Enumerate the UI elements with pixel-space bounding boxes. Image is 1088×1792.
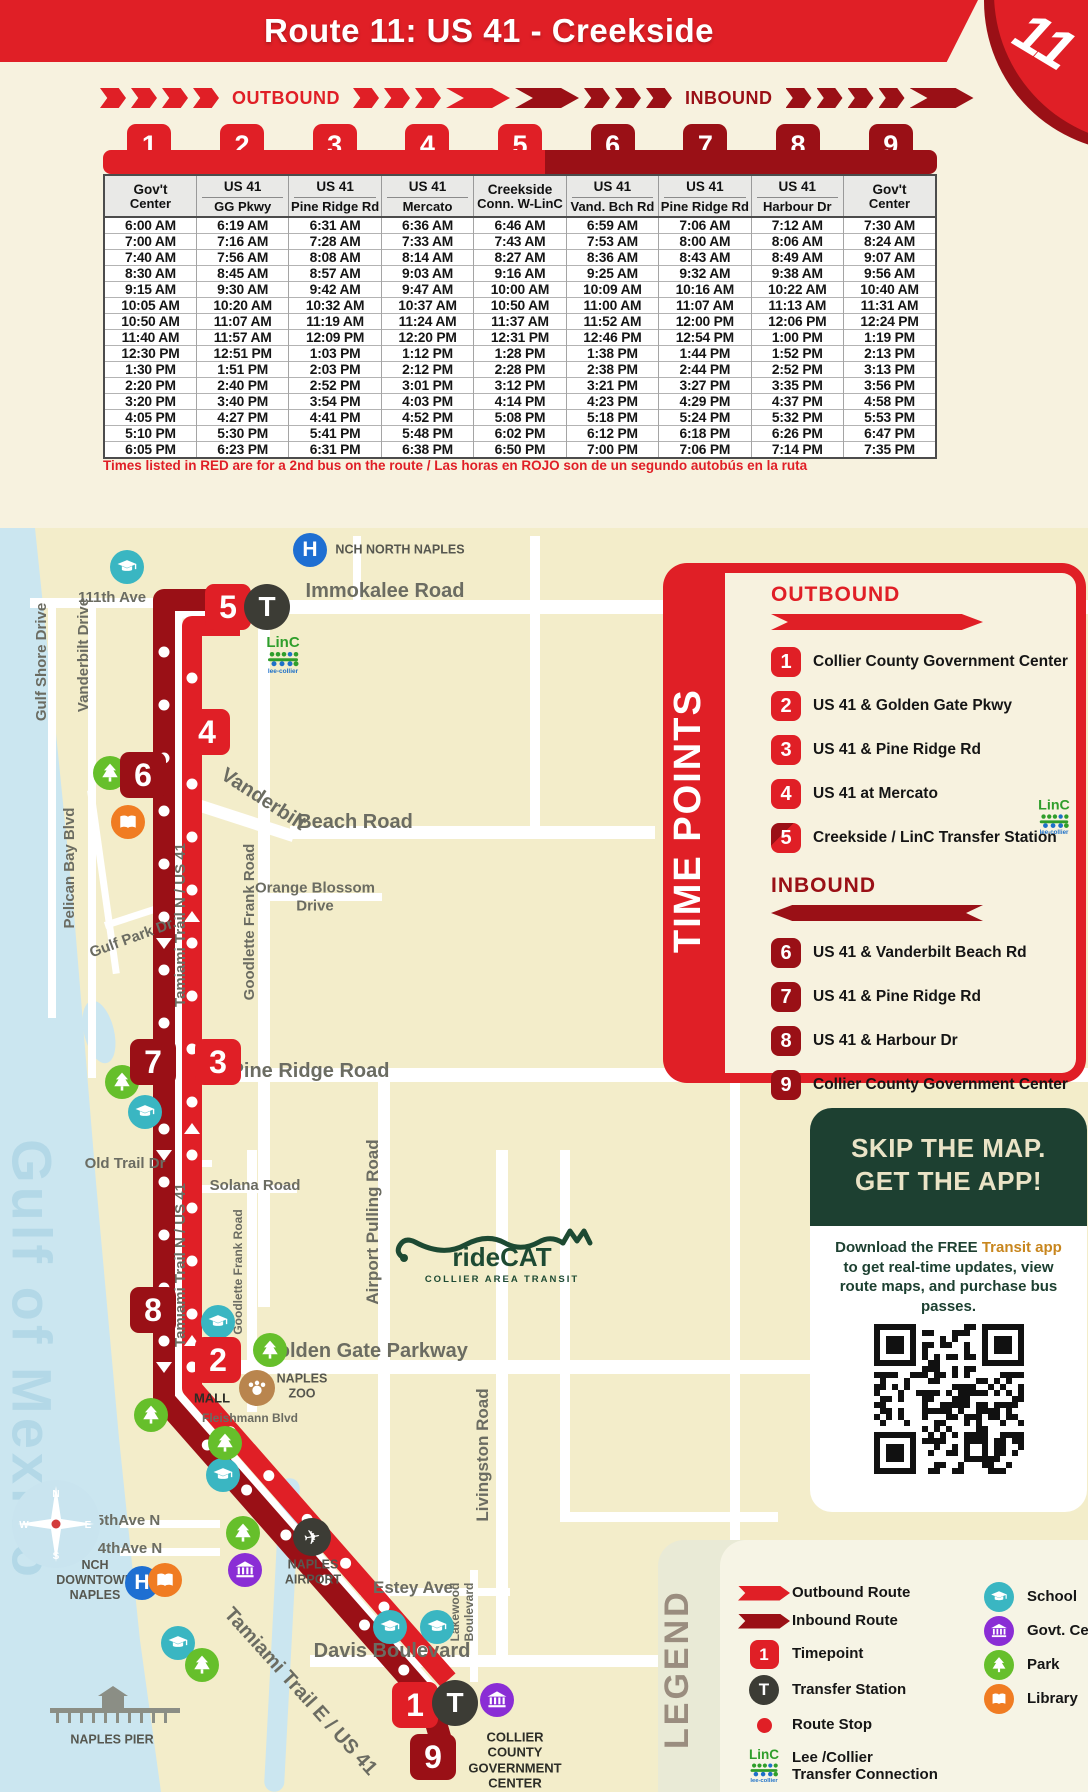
govt-icon — [480, 1683, 514, 1717]
route-stop — [159, 1230, 170, 1241]
timepoint-list-item: 9Collier County Government Center — [771, 1063, 1076, 1107]
timepoint-list-item: 5Creekside / LinC Transfer Station — [771, 816, 1076, 860]
linc-logo: LinClee-collier — [1037, 798, 1071, 836]
timepoint-list-item: 4US 41 at Mercato — [771, 772, 1076, 816]
timepoint-icon: 1 — [750, 1640, 779, 1669]
timepoint-number-badge: 9 — [771, 1070, 801, 1100]
app-title-line1: SKIP THE MAP. — [810, 1132, 1087, 1165]
timepoint-label: US 41 & Harbour Dr — [813, 1032, 958, 1050]
app-box-title: SKIP THE MAP. GET THE APP! — [810, 1108, 1087, 1226]
route-stop — [159, 1177, 170, 1188]
compass-n: N — [52, 1489, 59, 1500]
map-label: NAPLES ZOO — [277, 1371, 328, 1401]
timepoint-number-badge: 2 — [771, 691, 801, 721]
park-icon — [253, 1333, 287, 1367]
legend-item-label: Library — [1027, 1690, 1078, 1707]
timepoint-number-badge: 4 — [771, 779, 801, 809]
timepoint-number-badge: 6 — [771, 938, 801, 968]
timepoint-label: US 41 at Mercato — [813, 785, 938, 803]
timepoint-number-badge: 8 — [771, 1026, 801, 1056]
route-stop — [241, 1485, 252, 1496]
timepoint-number-badge: 7 — [771, 982, 801, 1012]
legend-item-label: Inbound Route — [792, 1612, 898, 1629]
map-label: Beach Road — [297, 811, 413, 835]
route-stop — [159, 965, 170, 976]
map-label: Solana Road — [210, 1177, 301, 1195]
route-stop — [159, 1018, 170, 1029]
map-label: 4thAve N — [98, 1540, 162, 1558]
inbound-timepoint-list: 6US 41 & Vanderbilt Beach Rd7US 41 & Pin… — [771, 931, 1076, 1107]
map-label: NAPLES AIRPORT — [285, 1557, 341, 1587]
map-timepoint-7: 7 — [130, 1039, 176, 1085]
route-stop — [340, 1558, 351, 1569]
school-icon — [373, 1610, 407, 1644]
transfer-station-marker: T — [432, 1680, 478, 1726]
timepoint-list-item: 6US 41 & Vanderbilt Beach Rd — [771, 931, 1076, 975]
route-stop — [187, 779, 198, 790]
route-stop — [187, 1097, 198, 1108]
transfer-station-icon: T — [749, 1675, 779, 1705]
app-text-suffix: to get real-time updates, view route map… — [840, 1259, 1058, 1315]
route-stop — [187, 1150, 198, 1161]
library-icon — [111, 805, 145, 839]
legend-item-label: Transfer Station — [792, 1681, 906, 1698]
inbound-route-icon — [738, 1614, 790, 1629]
map-label: NAPLES PIER — [70, 1733, 153, 1748]
park-icon — [185, 1648, 219, 1682]
timepoint-number-badge: 3 — [771, 735, 801, 765]
route-stop — [159, 1336, 170, 1347]
library-icon — [148, 1563, 182, 1597]
map-label: MALL — [194, 1390, 230, 1405]
legend-item: LinClee-collierLee /Collier Transfer Con… — [736, 1742, 961, 1790]
legend-item: School — [971, 1580, 1088, 1614]
route-stop — [159, 647, 170, 658]
map-label: Golden Gate Parkway — [262, 1340, 468, 1364]
zoo-icon — [239, 1370, 275, 1406]
legend-right-column: SchoolGovt. CenterParkLibrary — [971, 1580, 1088, 1790]
map-label: Airport Pulling Road — [363, 1139, 383, 1304]
get-the-app-box: SKIP THE MAP. GET THE APP! Download the … — [810, 1108, 1087, 1512]
route-11-schedule-page: Route 11: US 41 - Creekside 11 OUTBOUNDI… — [0, 0, 1088, 1792]
govt-icon — [984, 1616, 1014, 1646]
timepoint-label: Creekside / LinC Transfer Station — [813, 829, 1057, 847]
legend-item: Park — [971, 1648, 1088, 1682]
timepoint-label: Collier County Government Center — [813, 1076, 1068, 1094]
school-icon — [420, 1610, 454, 1644]
inbound-heading: INBOUND — [771, 874, 1076, 898]
legend-item-label: Lee /Collier Transfer Connection — [792, 1749, 938, 1784]
timepoint-list-item: 3US 41 & Pine Ridge Rd — [771, 728, 1076, 772]
outbound-heading: OUTBOUND — [771, 583, 1076, 607]
map-label: Pine Ridge Road — [231, 1060, 390, 1084]
school-icon — [110, 550, 144, 584]
timepoint-list-item: 8US 41 & Harbour Dr — [771, 1019, 1076, 1063]
legend-item-label: Outbound Route — [792, 1584, 910, 1601]
route-stop — [187, 832, 198, 843]
linc-logo: LinClee-collier — [1036, 797, 1072, 838]
route-stop — [159, 1124, 170, 1135]
map-label: Goodlette Frank Road — [241, 844, 259, 1001]
map-timepoint-8: 8 — [130, 1287, 176, 1333]
legend-item-label: Route Stop — [792, 1716, 872, 1733]
map-timepoint-6: 6 — [120, 752, 166, 798]
ridecat-logo: rideCAT COLLIER AREA TRANSIT — [390, 1198, 600, 1293]
linc-logo: LinClee-collier — [265, 635, 301, 676]
school-icon — [201, 1305, 235, 1339]
outbound-arrow-icon — [771, 614, 983, 630]
legend-item: 1Timepoint — [736, 1636, 961, 1672]
legend: LEGEND Outbound RouteInbound Route1Timep… — [658, 1540, 1088, 1792]
compass-s: S — [53, 1551, 60, 1562]
compass-w: W — [19, 1520, 29, 1531]
timepoint-label: US 41 & Vanderbilt Beach Rd — [813, 944, 1027, 962]
route-stop — [159, 806, 170, 817]
map-label: Old Trail Dr — [85, 1155, 166, 1173]
app-title-line2: GET THE APP! — [810, 1165, 1087, 1198]
timepoint-list-item: 7US 41 & Pine Ridge Rd — [771, 975, 1076, 1019]
legend-title: LEGEND — [658, 1564, 720, 1774]
map-timepoint-2: 2 — [195, 1337, 241, 1383]
outbound-timepoint-list: 1Collier County Government Center2US 41 … — [771, 640, 1076, 860]
map-label: 5thAve N — [96, 1512, 160, 1530]
legend-item: TTransfer Station — [736, 1672, 961, 1708]
map-timepoint-3: 3 — [195, 1039, 241, 1085]
school-icon — [984, 1582, 1014, 1612]
transfer-station-marker: T — [244, 584, 290, 630]
time-points-panel: TIME POINTS OUTBOUND 1Collier County Gov… — [663, 563, 1086, 1083]
park-icon — [134, 1398, 168, 1432]
legend-item: Route Stop — [736, 1708, 961, 1742]
qr-code — [874, 1324, 1024, 1474]
app-text-prefix: Download the FREE — [835, 1239, 982, 1256]
map-label: Tamiami Trail N / US 41 — [172, 843, 190, 1007]
outbound-route-icon — [738, 1586, 790, 1601]
map-label: Estey Ave — [373, 1578, 453, 1598]
ridecat-subtitle: COLLIER AREA TRANSIT — [425, 1274, 579, 1285]
route-stop — [159, 700, 170, 711]
map-label: Pelican Bay Blvd — [61, 808, 79, 929]
time-points-title: TIME POINTS — [667, 573, 723, 1069]
timepoint-number-badge: 5 — [771, 823, 801, 853]
linc-logo: LinClee-collier — [748, 1748, 780, 1784]
hospital-icon: H — [293, 533, 327, 567]
timepoint-list-item: 1Collier County Government Center — [771, 640, 1076, 684]
naples-pier-illustration — [50, 1686, 180, 1730]
legend-item-label: Govt. Center — [1027, 1622, 1088, 1639]
route-stop — [263, 1470, 274, 1481]
map-label: Fleishmann Blvd — [202, 1411, 298, 1425]
timepoint-label: Collier County Government Center — [813, 653, 1068, 671]
map-label: Livingston Road — [473, 1388, 493, 1521]
map-label: Orange Blossom Drive — [255, 879, 375, 914]
library-icon — [984, 1684, 1014, 1714]
map-timepoint-9: 9 — [410, 1734, 456, 1780]
timepoint-number-badge: 1 — [771, 647, 801, 677]
park-icon — [226, 1516, 260, 1550]
compass-e: E — [85, 1520, 92, 1531]
timepoint-label: US 41 & Pine Ridge Rd — [813, 988, 981, 1006]
map-label: Immokalee Road — [306, 580, 465, 604]
govt-icon — [228, 1553, 262, 1587]
ridecat-wordmark: rideCAT — [452, 1242, 551, 1272]
legend-item: Govt. Center — [971, 1614, 1088, 1648]
legend-item: Library — [971, 1682, 1088, 1716]
route-stop — [159, 859, 170, 870]
app-text-highlight: Transit app — [982, 1239, 1062, 1256]
route-stop — [398, 1665, 409, 1676]
map-label: Vanderbilt Drive — [75, 598, 93, 712]
route-stop — [280, 1530, 291, 1541]
school-icon — [128, 1095, 162, 1129]
compass-rose: N E S W — [10, 1478, 102, 1570]
map-label: COLLIER COUNTY GOVERNMENT CENTER — [468, 1729, 561, 1790]
legend-item-label: Park — [1027, 1656, 1060, 1673]
route-stop-icon — [757, 1718, 772, 1733]
timepoint-label: US 41 & Pine Ridge Rd — [813, 741, 981, 759]
school-icon — [206, 1458, 240, 1492]
map-label: NCH NORTH NAPLES — [335, 543, 464, 558]
route-stop — [359, 1620, 370, 1631]
park-icon — [984, 1650, 1014, 1680]
park-icon — [208, 1426, 242, 1460]
legend-item: Outbound Route — [736, 1580, 961, 1606]
legend-item-label: School — [1027, 1588, 1077, 1605]
timepoint-list-item: 2US 41 & Golden Gate Pkwy — [771, 684, 1076, 728]
route-stop — [187, 673, 198, 684]
inbound-arrow-icon — [771, 905, 983, 921]
map-label: Gulf Shore Drive — [33, 603, 51, 721]
map-timepoint-4: 4 — [184, 709, 230, 755]
app-box-text: Download the FREE Transit app to get rea… — [810, 1226, 1087, 1316]
legend-item: Inbound Route — [736, 1606, 961, 1636]
legend-left-column: Outbound RouteInbound Route1TimepointTTr… — [736, 1580, 961, 1790]
timepoint-label: US 41 & Golden Gate Pkwy — [813, 697, 1012, 715]
legend-item-label: Timepoint — [792, 1645, 863, 1662]
